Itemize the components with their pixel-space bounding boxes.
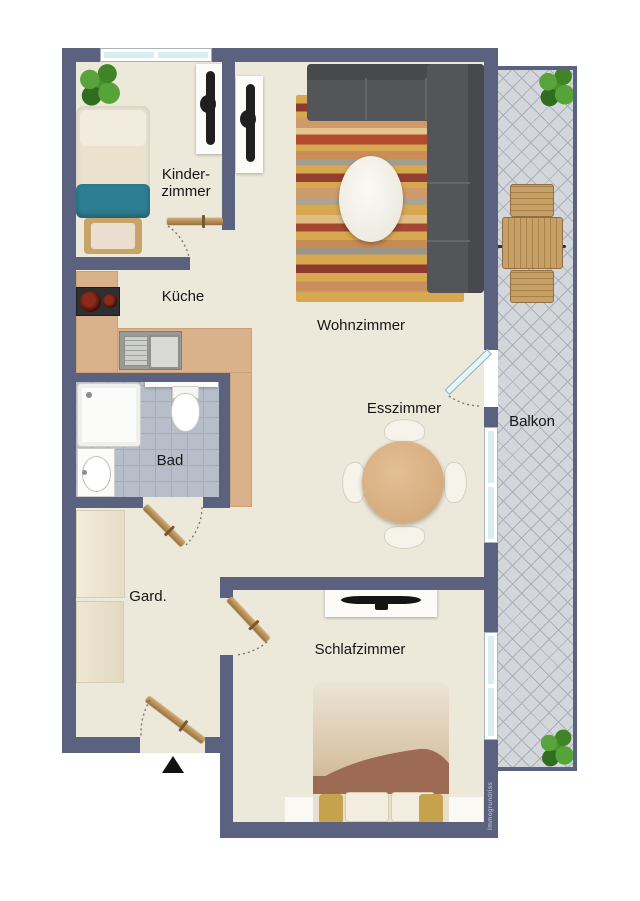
sink-basin xyxy=(149,335,180,369)
burner xyxy=(80,291,101,312)
sofa-cushion-seam xyxy=(427,240,470,242)
sofa-back xyxy=(468,64,484,293)
wall-bath-bottom xyxy=(62,497,143,508)
wall-bedroom-left xyxy=(220,655,233,838)
sofa-cushion-seam xyxy=(427,182,470,184)
entrance-arrow-icon xyxy=(162,756,184,773)
plant-icon xyxy=(536,67,576,109)
shower xyxy=(77,383,141,447)
room-label-kinderzimmer: Kinder- zimmer xyxy=(150,166,222,201)
room-label-line: zimmer xyxy=(161,183,210,200)
sink-drainboard xyxy=(124,336,148,366)
bed-blanket xyxy=(313,742,449,794)
child-bed-pillow xyxy=(80,110,146,146)
shower-drain xyxy=(86,392,92,398)
toilet xyxy=(168,386,201,432)
kitchen-counter-right xyxy=(230,372,252,507)
wall-bedroom-top xyxy=(233,577,498,590)
washbasin xyxy=(77,448,115,497)
dining-chair xyxy=(384,526,425,549)
wall-bedroom-left xyxy=(220,577,233,598)
window xyxy=(484,427,498,543)
room-label-bad: Bad xyxy=(150,452,190,469)
wall-right xyxy=(484,407,498,427)
tv-stand xyxy=(375,600,388,610)
room-label-line: Kinder- xyxy=(162,166,210,183)
pillow xyxy=(345,792,389,822)
room-label-schlafzimmer: Schlafzimmer xyxy=(310,641,410,658)
balcony-table xyxy=(502,217,563,269)
wall-balcony-top xyxy=(498,66,577,70)
room-label-garderobe: Gard. xyxy=(123,588,173,605)
bench-cushion xyxy=(91,223,135,249)
bed-end-bench xyxy=(84,218,142,254)
wardrobe-cabinet xyxy=(76,510,125,598)
desk-chair xyxy=(240,110,256,128)
room-label-kueche: Küche xyxy=(148,288,218,305)
bedside-bench xyxy=(319,794,343,824)
wall-bedroom-bottom xyxy=(220,822,498,838)
desk-chair xyxy=(200,95,216,113)
dining-chair xyxy=(444,462,467,503)
window-mullion xyxy=(487,483,495,487)
window xyxy=(100,48,212,62)
plant-icon xyxy=(538,729,575,769)
wall-left xyxy=(62,48,76,753)
child-bed xyxy=(76,106,150,254)
window xyxy=(484,632,498,740)
wall-bath-bottom xyxy=(203,497,230,508)
room-label-balkon: Balkon xyxy=(502,413,562,430)
child-bed-blanket xyxy=(76,184,150,218)
toilet-bowl xyxy=(171,393,200,432)
window-mullion xyxy=(487,684,495,688)
wall-right xyxy=(484,48,498,350)
tv-sideboard xyxy=(325,587,437,617)
wall-balcony-right xyxy=(573,66,577,771)
wardrobe-cabinet xyxy=(76,601,124,683)
burner xyxy=(103,294,117,308)
wall-kinderzimmer-bottom xyxy=(62,257,190,270)
room-label-wohnzimmer: Wohnzimmer xyxy=(316,317,406,334)
wall-bath-right xyxy=(219,382,230,507)
coffee-table xyxy=(339,156,403,242)
double-bed xyxy=(313,682,449,830)
floor-plan: Kinder- zimmer Küche Wohnzimmer Esszimme… xyxy=(0,0,640,901)
bedside-bench xyxy=(419,794,443,824)
dining-chair xyxy=(384,419,425,442)
kitchen-sink xyxy=(119,331,182,370)
washbasin-faucet xyxy=(82,470,87,475)
wall-balcony-bottom xyxy=(498,767,577,771)
watermark-label: Immogrundriss xyxy=(487,766,494,830)
dining-table xyxy=(362,441,444,523)
sofa-cushion-seam xyxy=(365,78,367,120)
wall-kinderzimmer-right xyxy=(222,62,235,230)
stove xyxy=(76,287,120,316)
door-kinderzimmer xyxy=(167,218,223,225)
room-label-esszimmer: Esszimmer xyxy=(364,400,444,417)
wall-bath-top xyxy=(70,373,230,382)
balcony-chair xyxy=(510,184,554,217)
plant-icon xyxy=(76,64,122,108)
wall-hall-bottom xyxy=(62,737,140,753)
balcony-chair xyxy=(510,270,554,303)
sofa-chaise xyxy=(427,64,484,293)
window-mullion xyxy=(154,51,158,59)
